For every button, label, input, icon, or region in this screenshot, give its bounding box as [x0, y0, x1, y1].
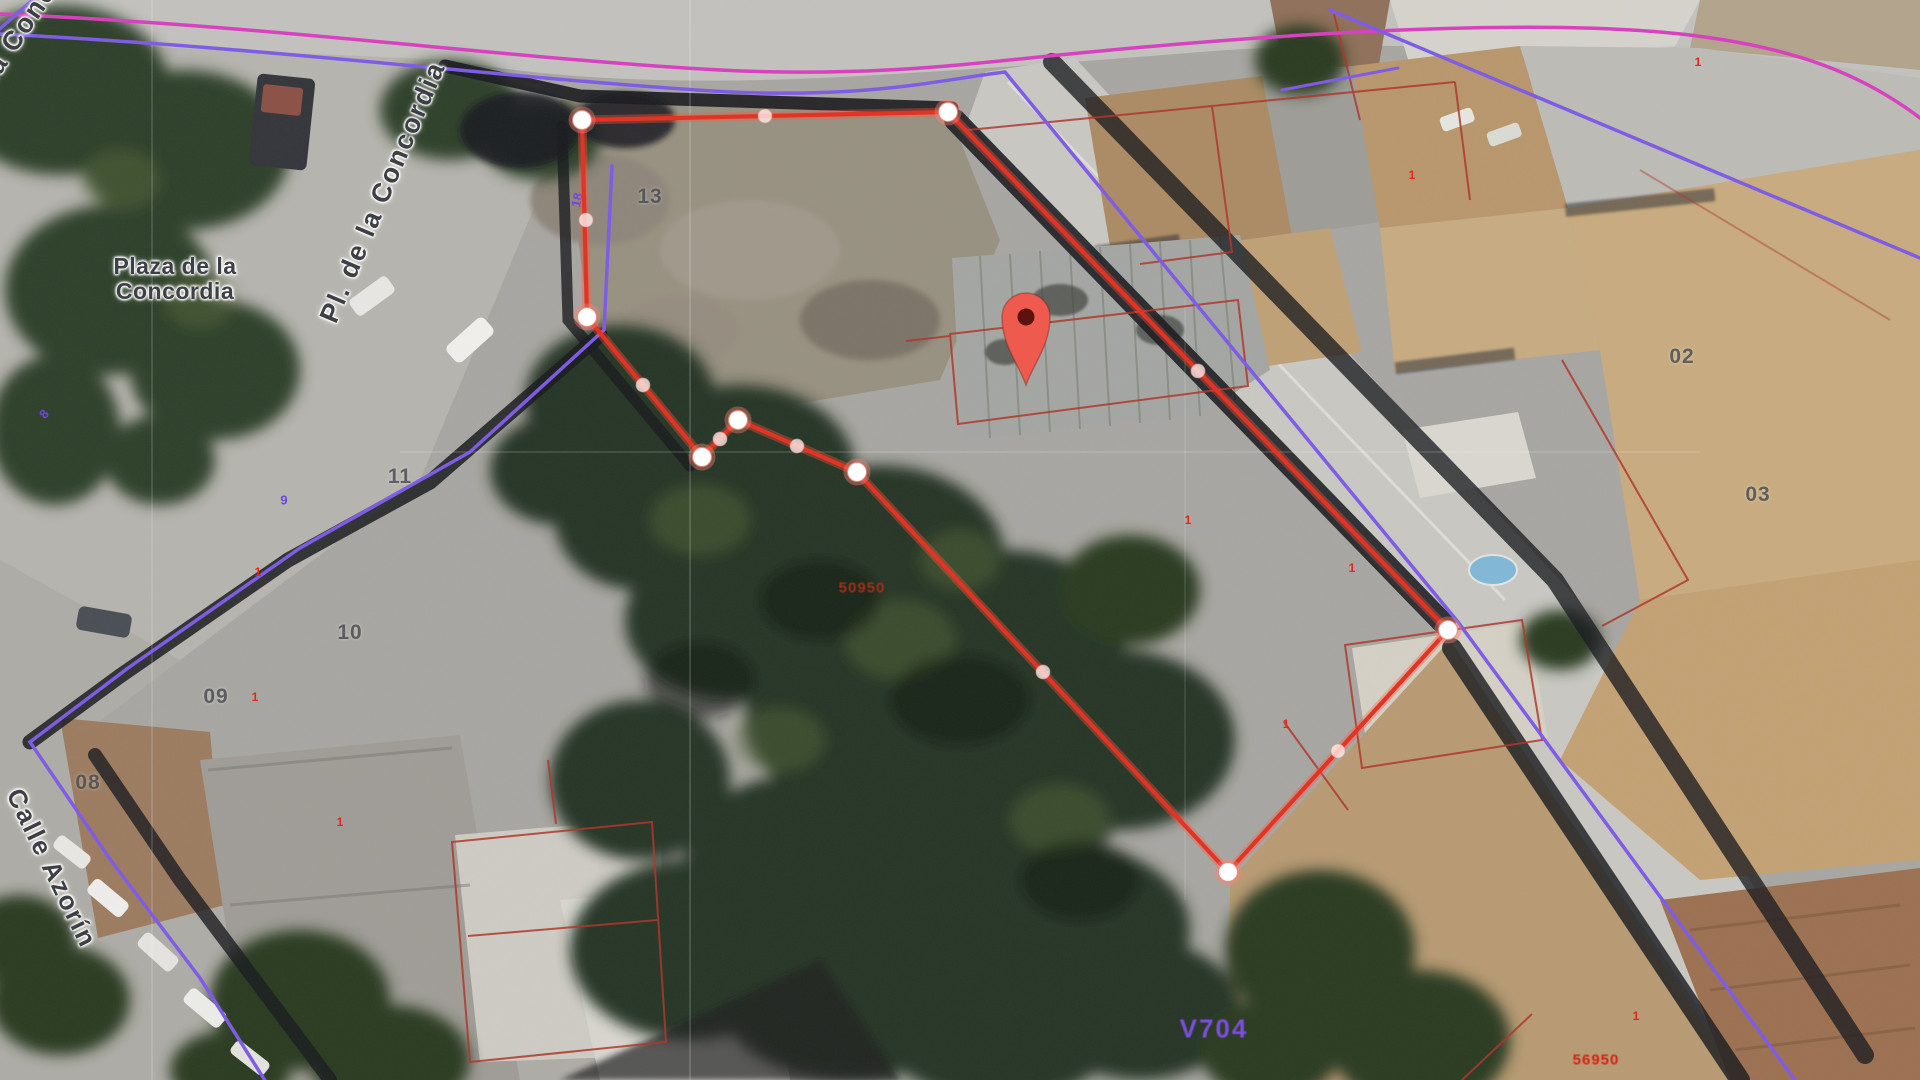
vertex-handle-3[interactable] [729, 411, 748, 430]
midpoint-handle-5[interactable] [1331, 744, 1345, 758]
midpoint-handle-3[interactable] [790, 439, 804, 453]
map-pin-core [1018, 309, 1035, 326]
vertex-handle-1[interactable] [578, 308, 597, 327]
parcel-drawing-overlay [0, 0, 1920, 1080]
vertex-handle-6[interactable] [1439, 621, 1458, 640]
midpoint-handle-6[interactable] [1191, 364, 1205, 378]
midpoint-handle-2[interactable] [713, 432, 727, 446]
vertex-handle-2[interactable] [693, 448, 712, 467]
vertex-handle-4[interactable] [848, 463, 867, 482]
midpoint-handle-0[interactable] [579, 213, 593, 227]
map-pin-body [1002, 293, 1050, 385]
midpoint-handle-4[interactable] [1036, 665, 1050, 679]
map-canvas[interactable]: Plaza de la ConcordiaPl. de la Concordia… [0, 0, 1920, 1080]
vertex-handle-0[interactable] [573, 111, 592, 130]
midpoint-handle-7[interactable] [758, 109, 772, 123]
vertex-handle-5[interactable] [1219, 863, 1238, 882]
vertex-handle-7[interactable] [939, 103, 958, 122]
parcel-polygon-glow [582, 112, 1448, 872]
midpoint-handle-1[interactable] [636, 378, 650, 392]
map-pin[interactable] [1002, 293, 1050, 385]
